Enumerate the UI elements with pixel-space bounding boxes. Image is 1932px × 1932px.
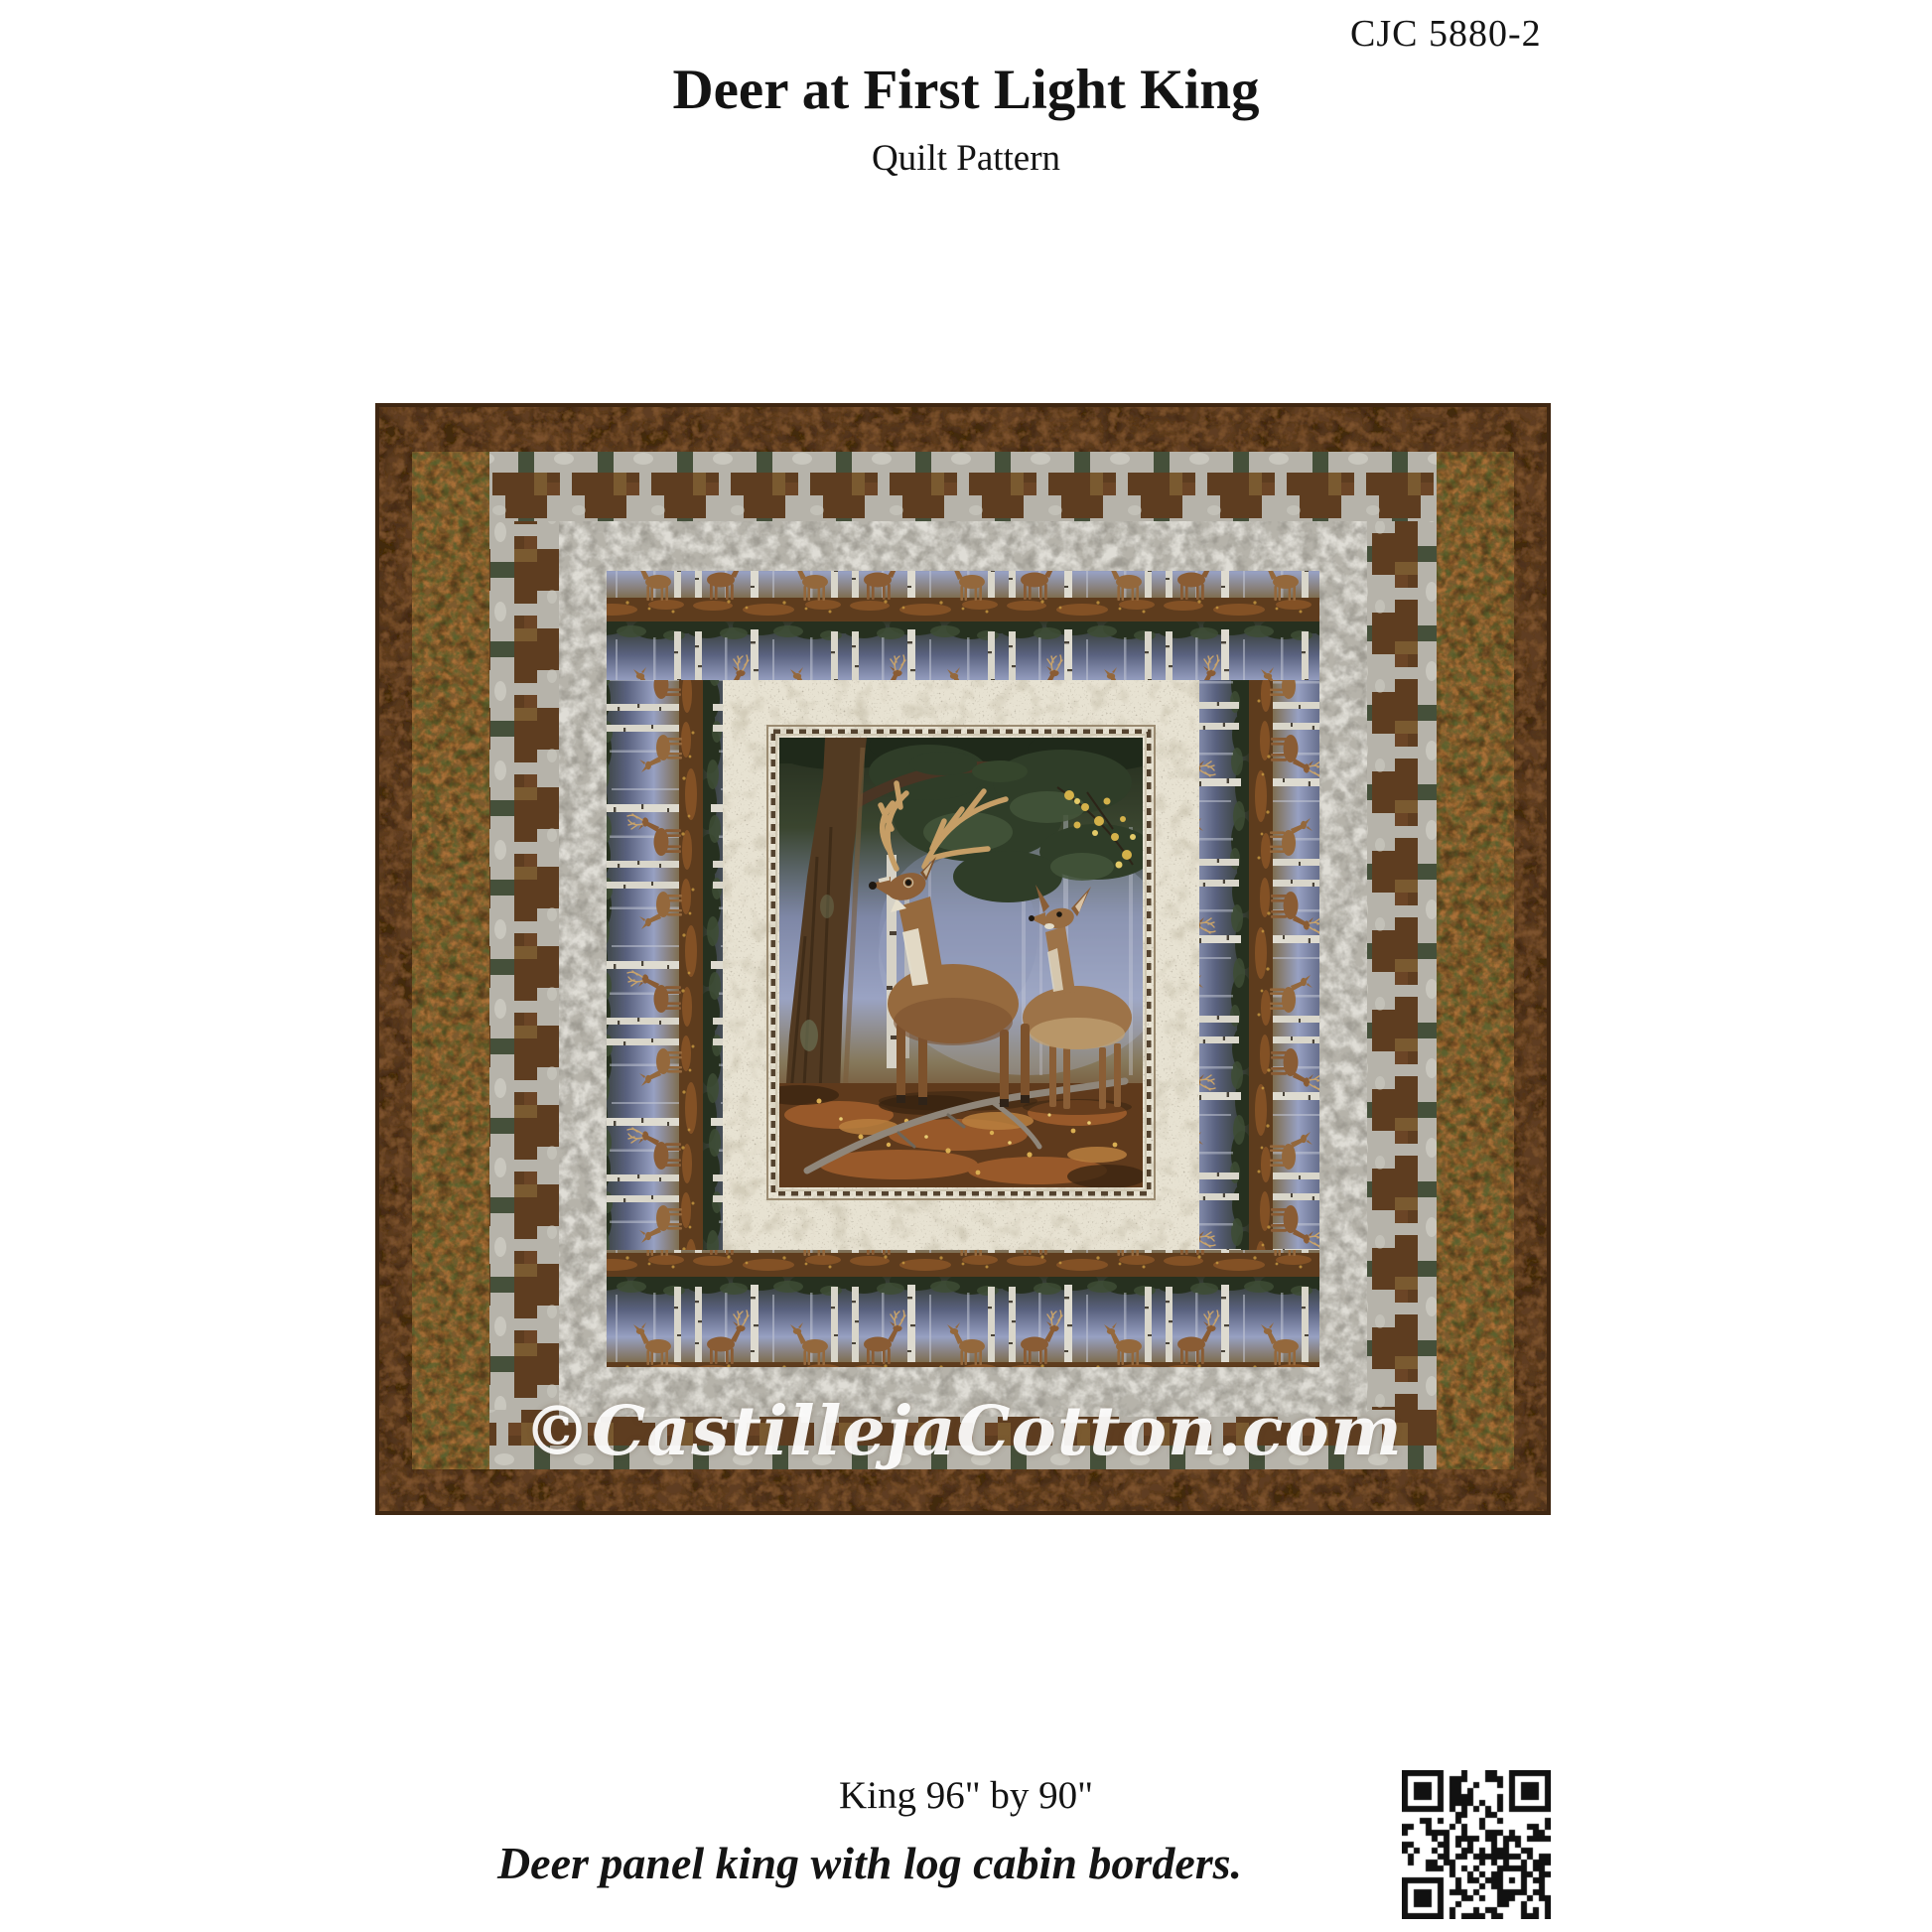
quilt-graphic xyxy=(375,403,1551,1515)
pattern-cover-page: CJC 5880-2 Deer at First Light King Quil… xyxy=(0,0,1932,1932)
center-deer-scene xyxy=(759,722,1176,1188)
qr-code xyxy=(1402,1770,1551,1919)
forest-floor xyxy=(759,1083,1147,1188)
quilt-size: King 96" by 90" xyxy=(0,1773,1932,1818)
page-title: Deer at First Light King xyxy=(0,58,1932,122)
quilt-photo: ©CastillejaCotton.com xyxy=(375,403,1551,1515)
watermark: ©CastillejaCotton.com xyxy=(523,1392,1403,1471)
pattern-code: CJC 5880-2 xyxy=(1350,12,1542,56)
page-subtitle: Quilt Pattern xyxy=(0,137,1932,180)
